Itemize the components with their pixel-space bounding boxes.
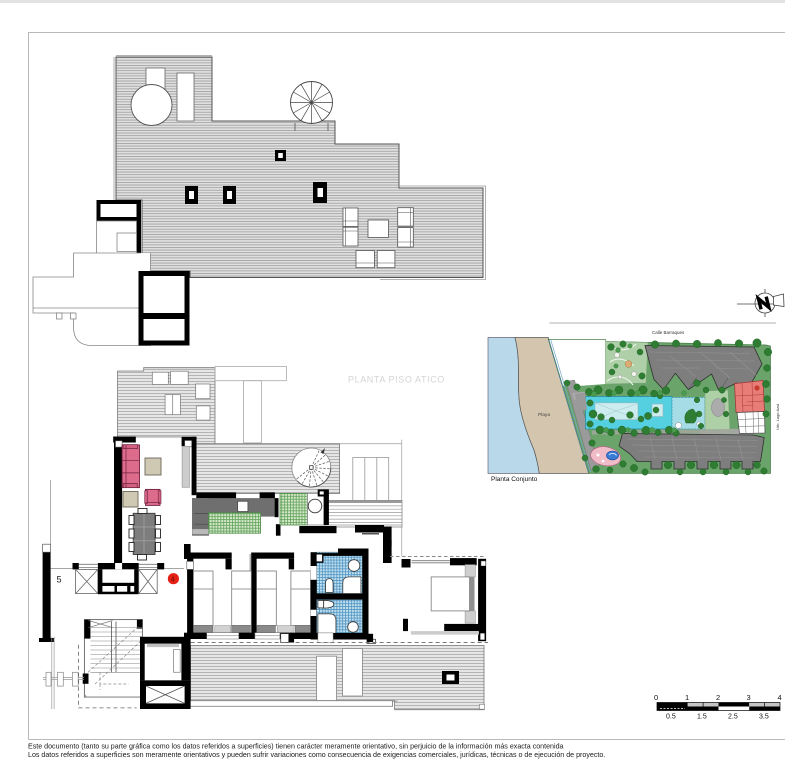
- svg-text:Calle Barraques: Calle Barraques: [652, 330, 685, 335]
- svg-text:5: 5: [57, 575, 62, 585]
- svg-text:Los datos referidos a superfic: Los datos referidos a superficies son me…: [28, 751, 605, 759]
- svg-text:2: 2: [716, 693, 720, 702]
- svg-text:1: 1: [685, 693, 689, 702]
- svg-text:2.5: 2.5: [728, 714, 738, 721]
- svg-text:3: 3: [747, 693, 751, 702]
- svg-text:Planta Conjunto: Planta Conjunto: [491, 476, 538, 483]
- svg-text:Playa: Playa: [538, 412, 550, 418]
- svg-text:0.5: 0.5: [666, 714, 676, 721]
- svg-text:4: 4: [171, 577, 175, 584]
- svg-text:4: 4: [778, 693, 782, 702]
- svg-text:1.5: 1.5: [697, 714, 707, 721]
- svg-text:PLANTA PISO ATICO: PLANTA PISO ATICO: [348, 375, 445, 385]
- svg-text:Urb. Lago Azul: Urb. Lago Azul: [775, 404, 780, 430]
- svg-text:3.5: 3.5: [759, 714, 769, 721]
- svg-text:0: 0: [654, 693, 658, 702]
- svg-text:Este documento (tanto su parte: Este documento (tanto su parte gráfica c…: [28, 743, 564, 751]
